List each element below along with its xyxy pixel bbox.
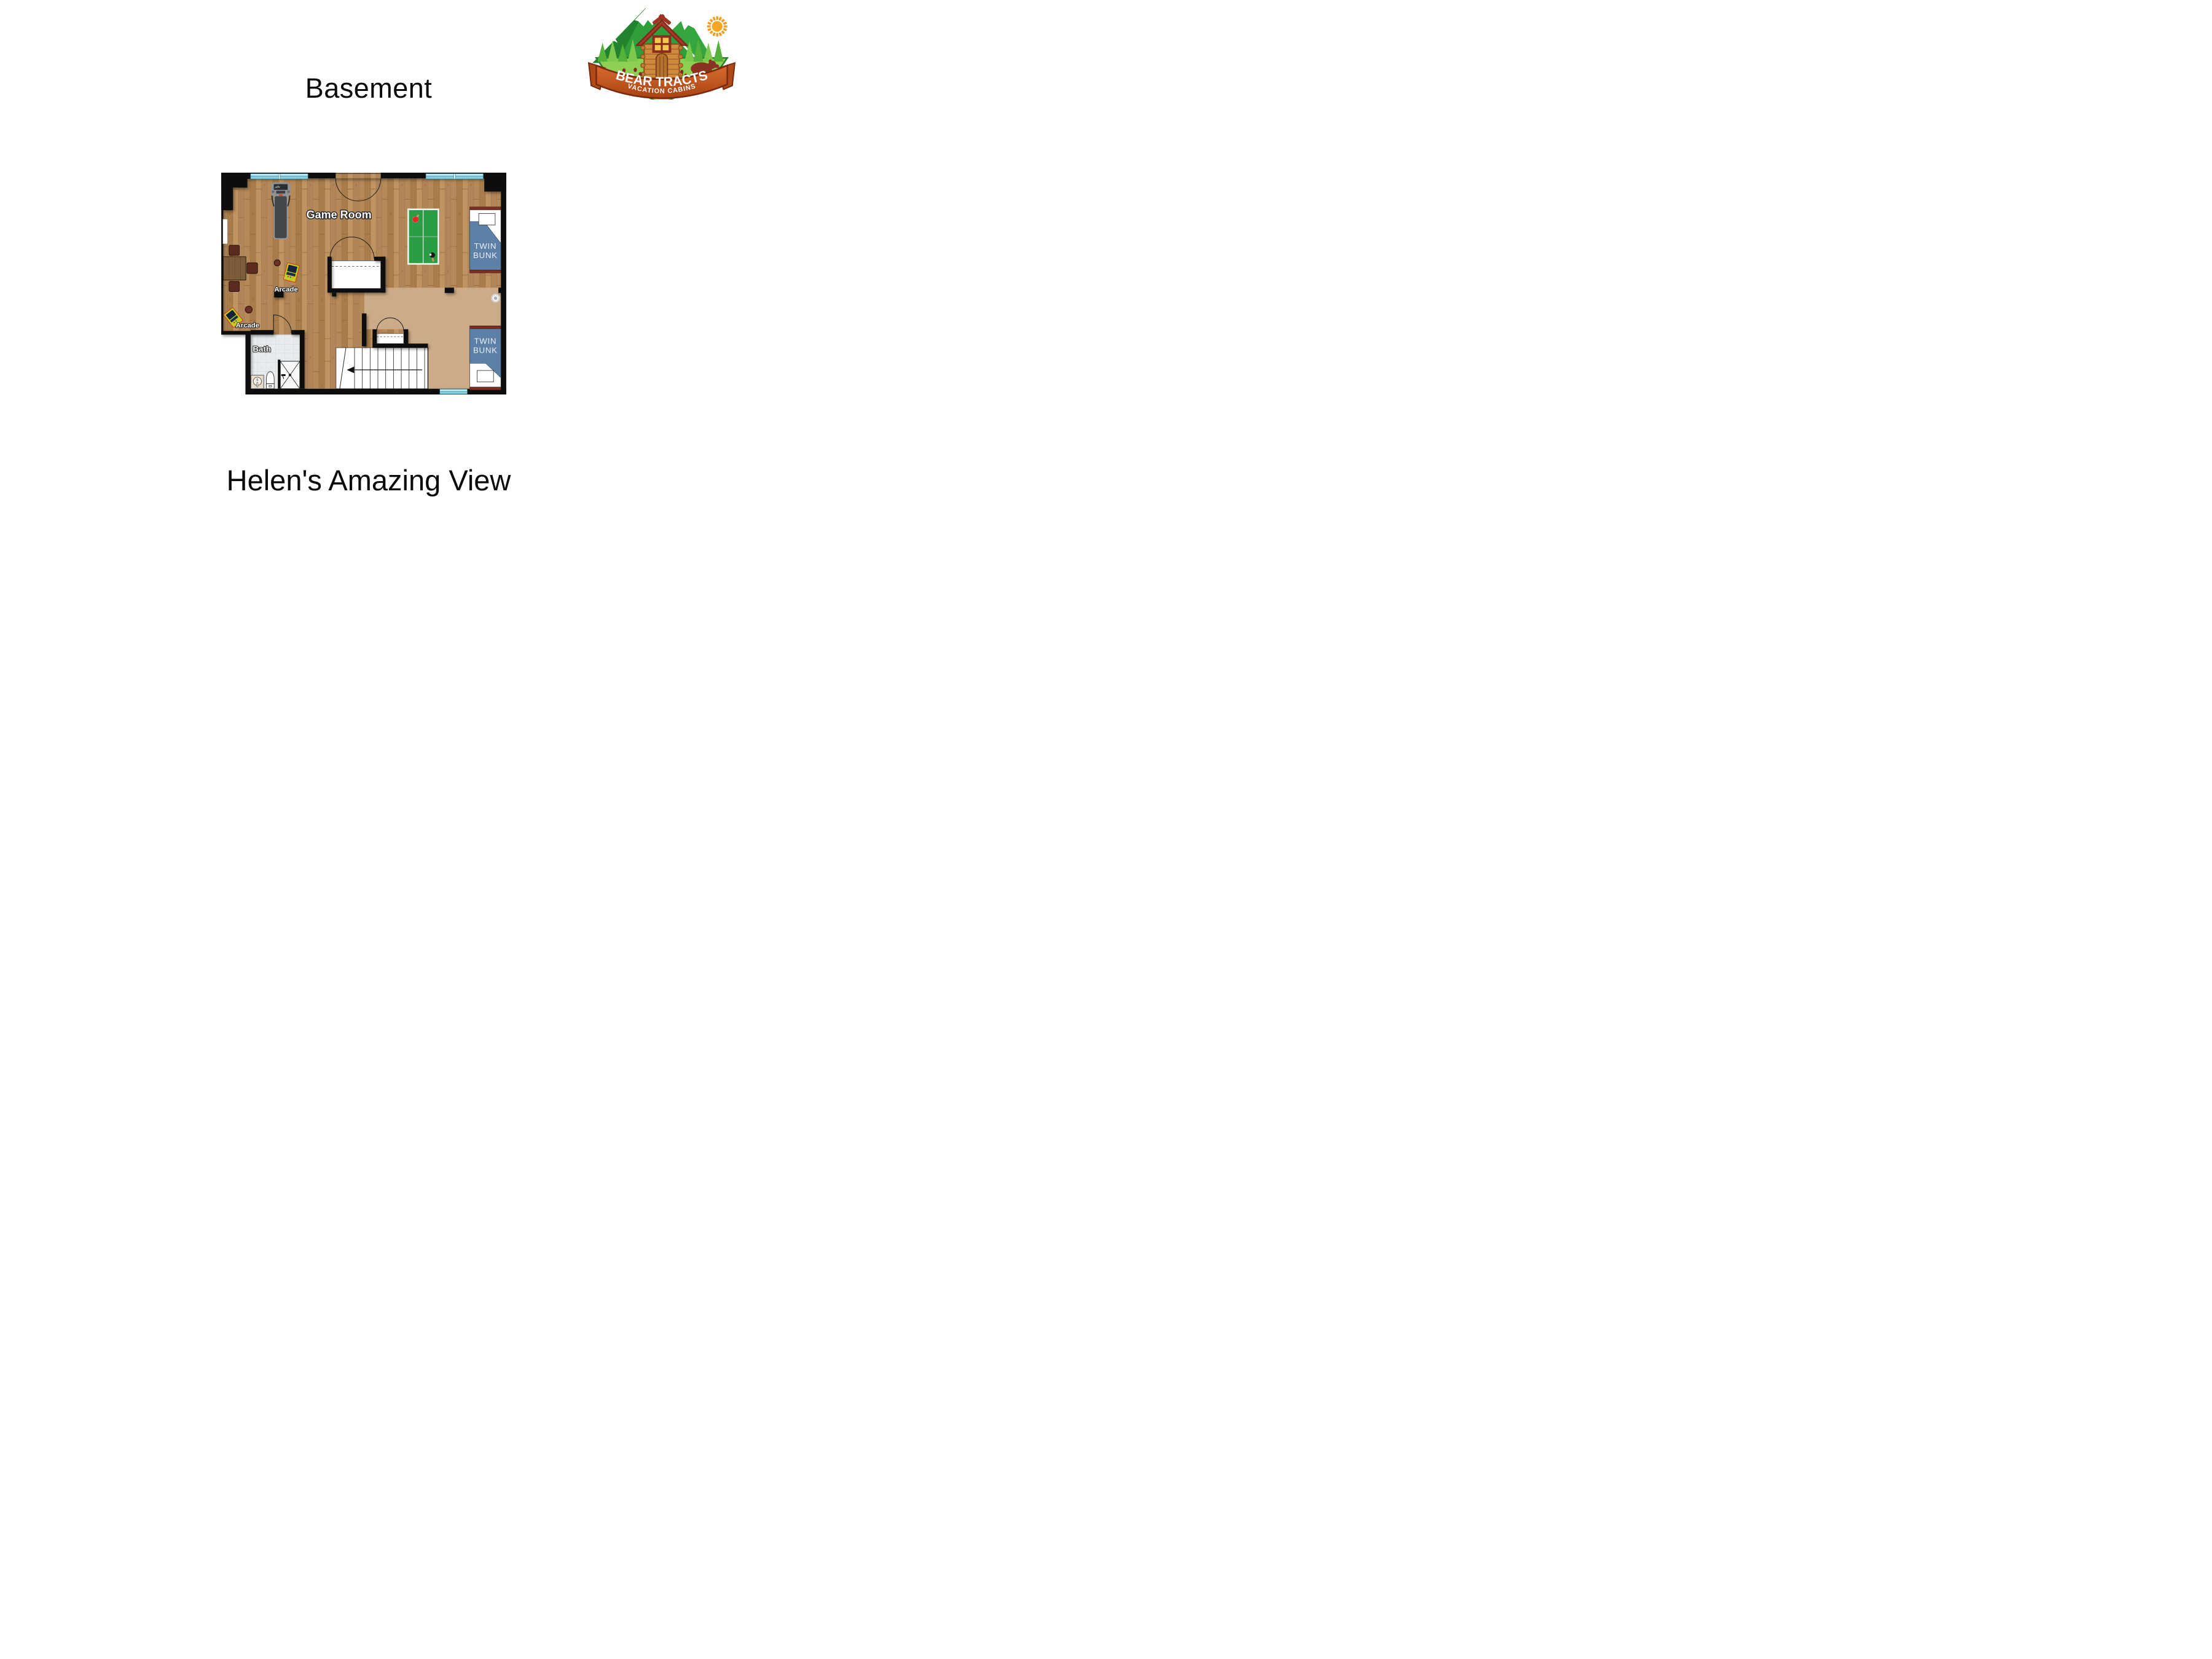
floor-plan: TWIN BUNK TWIN BUNK Game Room Arcade Arc…: [221, 173, 506, 394]
window-bottom: [440, 389, 468, 394]
stool: [229, 281, 240, 292]
twin-bunk-bed-top: TWIN BUNK: [469, 207, 501, 273]
shower: [280, 361, 300, 389]
closet-bunk-room-interior: [377, 334, 404, 343]
stool: [229, 245, 240, 256]
speaker-icon: [492, 294, 500, 302]
bear-tracts-logo: BEAR TRACTS VACATION CABINS: [586, 4, 737, 100]
bed-label: TWIN: [474, 337, 496, 346]
pillow: [479, 213, 495, 225]
window-top-left: [251, 174, 308, 179]
bed-label: BUNK: [473, 251, 498, 260]
bed-label: TWIN: [474, 241, 496, 251]
wall-panel: [223, 219, 227, 244]
treadmill: [271, 182, 291, 238]
sink-vanity: [251, 375, 264, 389]
stool-round: [274, 260, 280, 266]
arcade-label-1: Arcade: [274, 286, 297, 294]
cabin-window: [654, 36, 670, 52]
pillow: [477, 371, 494, 382]
cabin-door: [656, 53, 667, 78]
room-label-bath: Bath: [253, 345, 271, 354]
ping-pong-table: [407, 208, 439, 264]
room-label-game-room: Game Room: [307, 209, 372, 221]
game-table: [223, 257, 246, 280]
window-top-right: [426, 174, 483, 179]
twin-bunk-bed-bottom: TWIN BUNK: [469, 326, 501, 390]
arcade-label-2: Arcade: [236, 322, 259, 329]
stairwell: [336, 348, 428, 389]
stool: [247, 263, 257, 273]
stool-round: [245, 306, 252, 313]
property-name: Helen's Amazing View: [0, 463, 737, 497]
sun-icon: [707, 17, 728, 37]
bed-label: BUNK: [473, 346, 498, 355]
closet-game-room-interior: [332, 261, 381, 288]
toilet: [267, 372, 275, 389]
